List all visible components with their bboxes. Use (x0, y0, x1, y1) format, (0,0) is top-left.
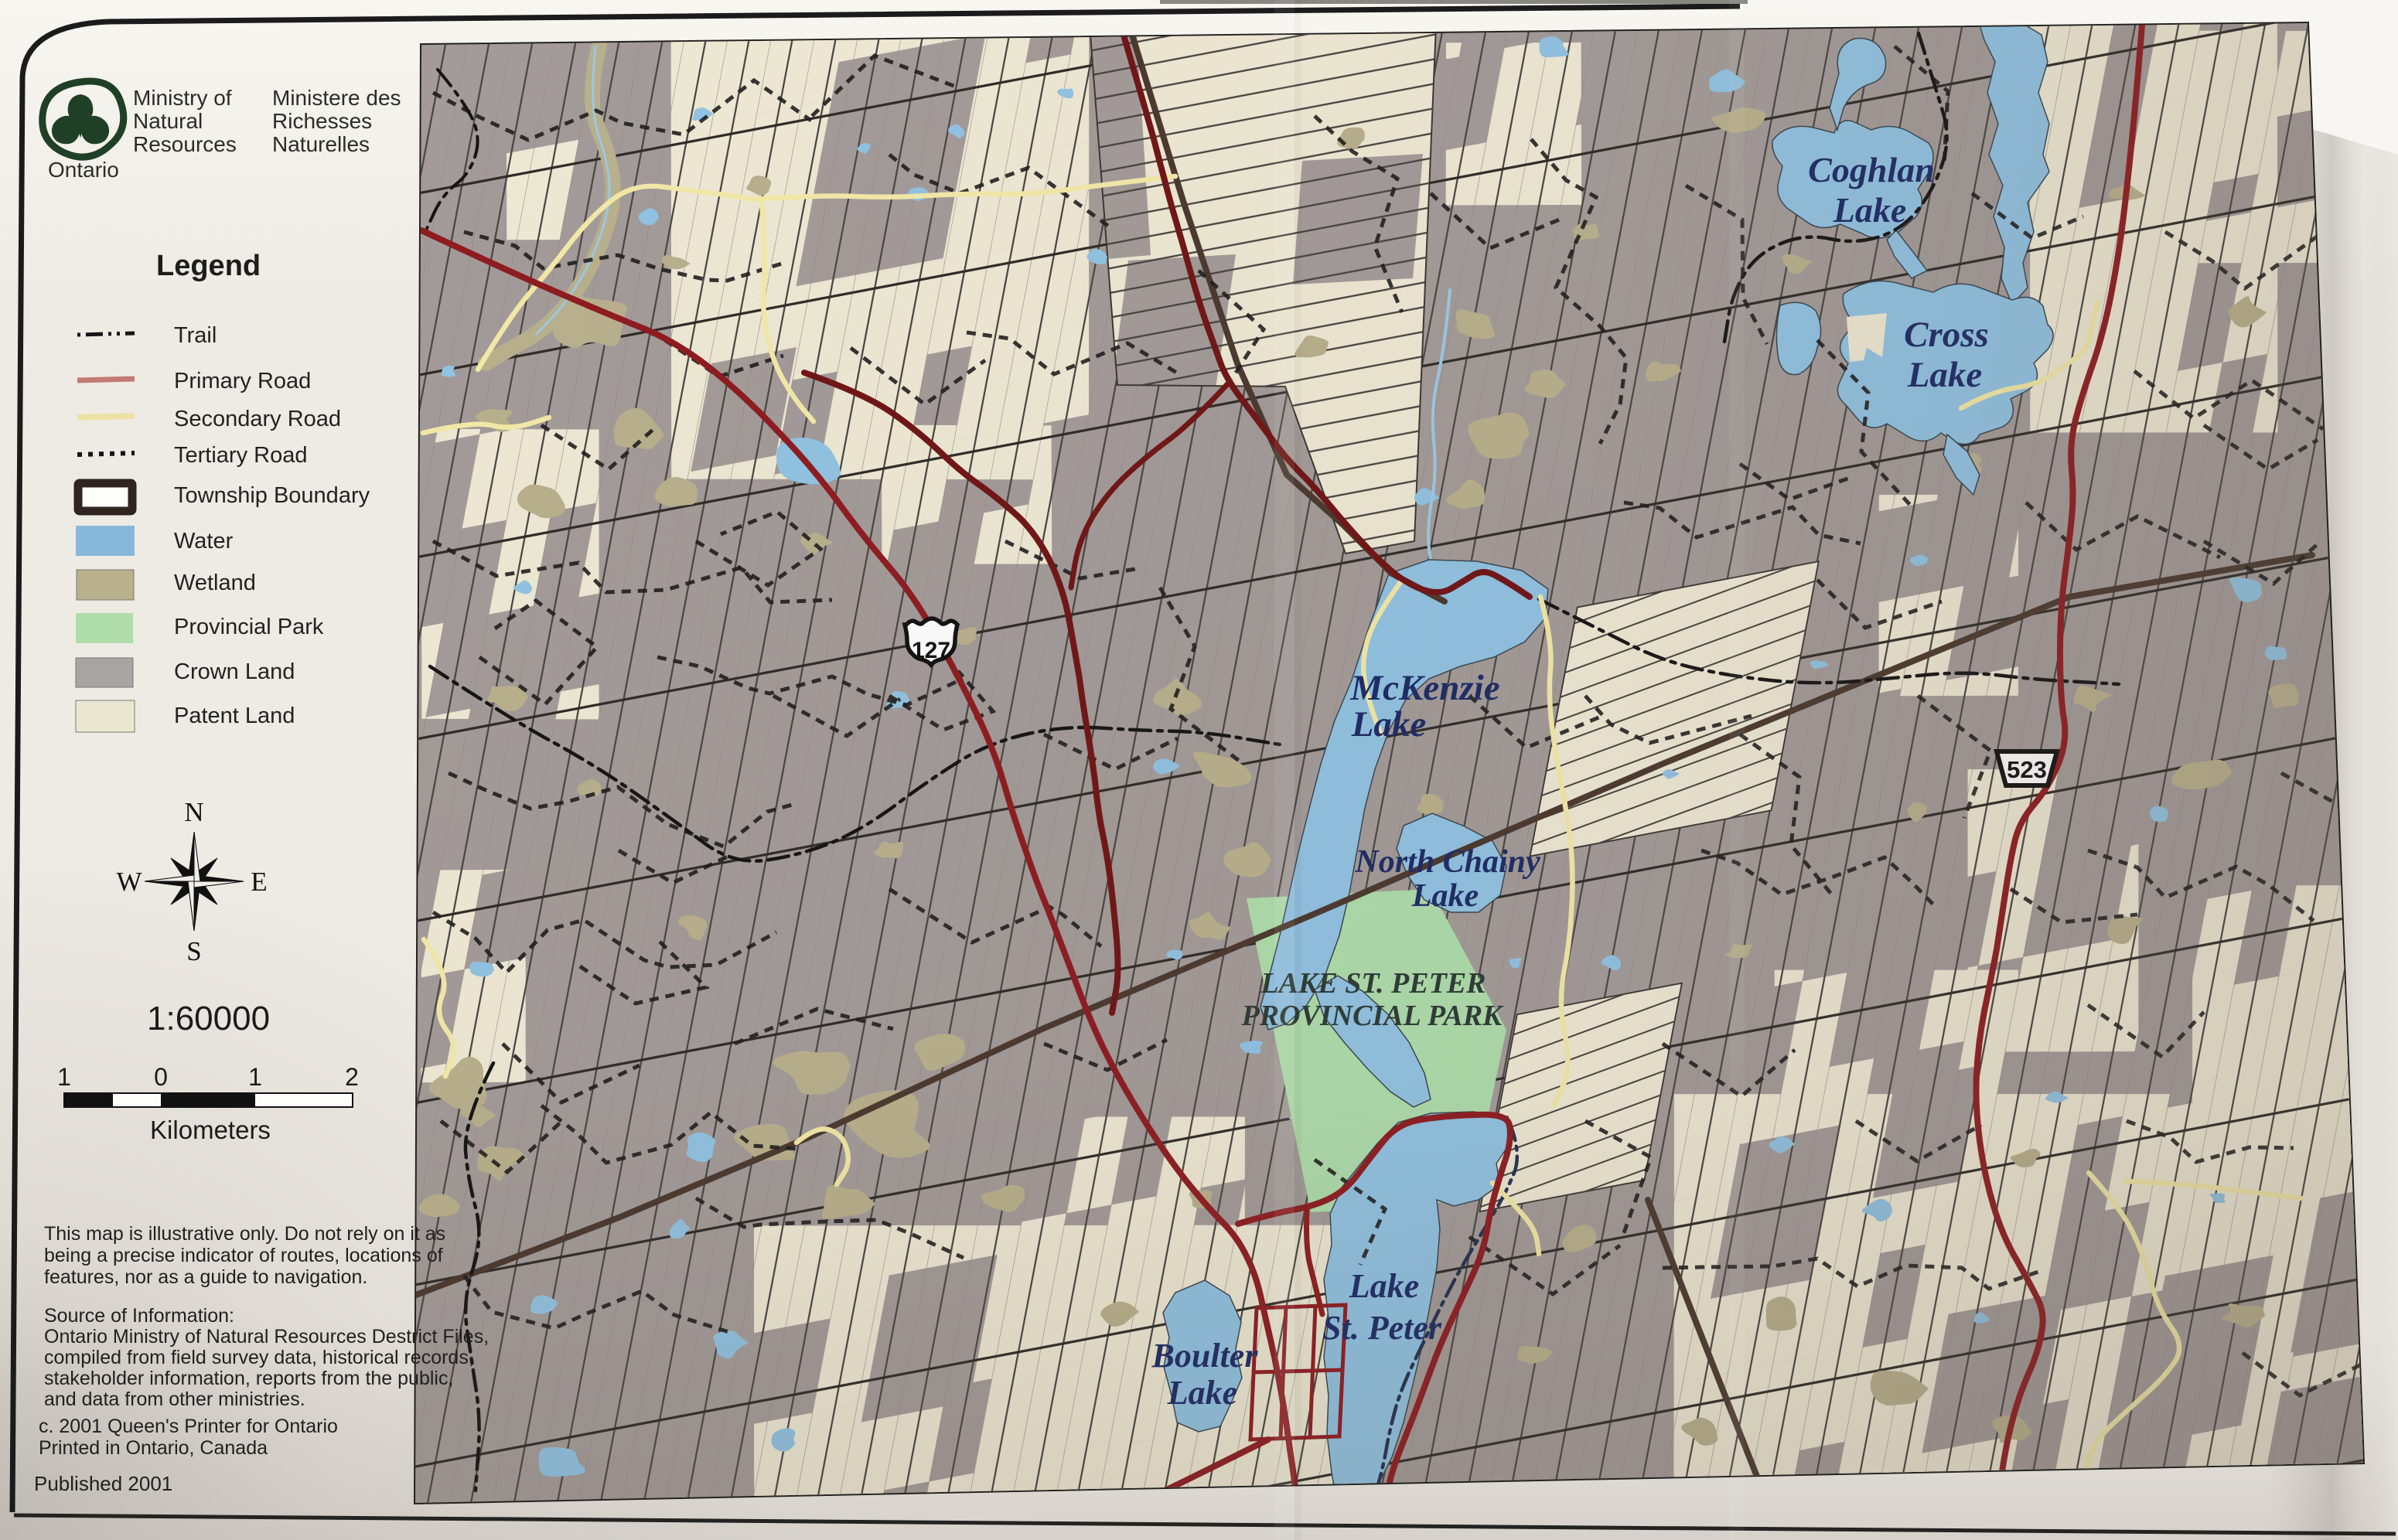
svg-text:Water: Water (174, 529, 234, 554)
svg-text:Patent Land: Patent Land (174, 704, 295, 728)
svg-text:W: W (116, 867, 142, 897)
svg-text:1: 1 (57, 1063, 71, 1091)
svg-text:Primary Road: Primary Road (174, 369, 311, 394)
svg-text:Wetland: Wetland (174, 571, 256, 595)
svg-text:Published 2001: Published 2001 (34, 1472, 172, 1495)
svg-text:Trail: Trail (174, 323, 217, 348)
svg-text:N: N (184, 797, 203, 827)
svg-text:0: 0 (154, 1063, 168, 1091)
svg-text:Ontario: Ontario (48, 158, 119, 182)
svg-text:2: 2 (345, 1063, 359, 1091)
svg-text:E: E (251, 867, 267, 897)
svg-text:1:60000: 1:60000 (147, 1000, 270, 1037)
svg-text:Crown Land: Crown Land (174, 659, 295, 684)
svg-text:Legend: Legend (156, 250, 261, 282)
svg-text:Kilometers: Kilometers (150, 1116, 271, 1144)
svg-text:S: S (186, 936, 201, 966)
svg-text:Provincial Park: Provincial Park (174, 615, 324, 639)
svg-text:1: 1 (248, 1063, 262, 1091)
svg-text:Tertiary Road: Tertiary Road (174, 443, 307, 468)
svg-text:Secondary Road: Secondary Road (174, 407, 341, 431)
svg-text:Township Boundary: Township Boundary (174, 483, 370, 508)
